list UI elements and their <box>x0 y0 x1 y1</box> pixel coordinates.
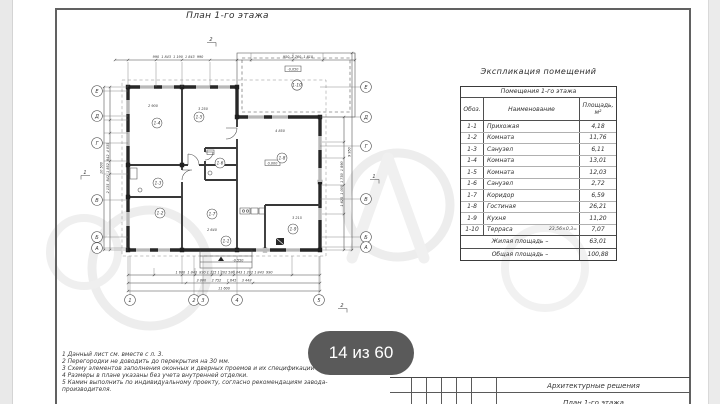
svg-text:3 800 2 752 1 645: 3 800 2 752 1 645 3 448 <box>197 279 253 283</box>
svg-text:2: 2 <box>192 298 195 304</box>
svg-text:1-2: 1-2 <box>157 211 164 216</box>
col-header-area: Площадь, м² <box>580 98 616 120</box>
table-row: 1-7Коридор6,59 <box>461 189 616 201</box>
pagination-badge: 14 из 60 <box>308 331 414 375</box>
svg-text:11 600: 11 600 <box>218 287 230 291</box>
porch-elevation: -0,550 <box>233 259 244 263</box>
bathroom-fixtures <box>130 150 214 192</box>
explication-table: Помещения 1-го этажа Обоз. Наименование … <box>460 86 617 261</box>
screenshot-root: План 1-го этажа -0,050 <box>0 0 720 404</box>
svg-text:3 250: 3 250 <box>198 107 208 111</box>
svg-text:1-7: 1-7 <box>209 212 216 217</box>
svg-text:1-10: 1-10 <box>292 83 302 88</box>
title-block: Архитектурные решения План 1-го этажа <box>390 377 690 404</box>
svg-text:2: 2 <box>209 37 212 43</box>
svg-text:2 135 842 1 852 842 4 035: 2 135 842 1 852 842 4 035 <box>106 143 110 194</box>
entrance-porch: -0,550 <box>200 250 252 268</box>
svg-text:Д: Д <box>363 115 368 121</box>
room-bubbles: 1-1 1-2 1-3 1-4 1-5 1-6 1-7 1-8 1-9 1-10 <box>152 80 302 246</box>
svg-text:4: 4 <box>235 298 238 304</box>
note-line: 5 Камин выполнить по индивидуальному про… <box>62 380 402 387</box>
terrace-elevation: -0,050 <box>288 67 299 71</box>
living-area-total: Жилая площадь – 63,01 <box>461 235 616 248</box>
svg-text:1: 1 <box>83 170 86 176</box>
terrace-coefficient-note: 23,56×0,3= <box>549 227 579 232</box>
svg-text:3: 3 <box>201 298 204 304</box>
title-block-signature-grid <box>390 378 497 404</box>
svg-text:Б: Б <box>364 235 368 241</box>
table-column-headers: Обоз. Наименование Площадь, м² <box>461 98 616 121</box>
explication-title: Экспликация помещений <box>460 66 617 78</box>
table-row: 1-8Гостиная26,21 <box>461 201 616 213</box>
svg-text:А: А <box>363 245 368 251</box>
svg-text:1-3: 1-3 <box>155 181 162 186</box>
table-row: 1-4Комната13,01 <box>461 155 616 167</box>
svg-text:1-8: 1-8 <box>279 156 286 161</box>
svg-text:5: 5 <box>317 298 320 304</box>
interior-dimensions: 2 900 3 250 4 850 2 640 3 215 <box>148 104 302 232</box>
svg-text:1-6: 1-6 <box>217 161 224 166</box>
svg-text:Б: Б <box>95 235 99 241</box>
fireplace <box>276 238 284 245</box>
svg-text:2 640: 2 640 <box>207 228 217 232</box>
svg-text:В: В <box>95 198 99 204</box>
table-row: 1-10 Терраса23,56×0,3= 7,07 <box>461 224 616 236</box>
svg-text:1 680 1 843 830 1 115 1 202: 1 680 1 843 830 1 115 1 202 580 843 1 20… <box>175 271 272 275</box>
table-row: 1-3Санузел6,11 <box>461 143 616 155</box>
svg-text:В: В <box>364 197 368 203</box>
title-block-sheet-caption: План 1-го этажа <box>497 393 690 404</box>
table-row: 1-2Комната11,76 <box>461 132 616 144</box>
explication: Экспликация помещений Помещения 1-го эта… <box>460 66 617 261</box>
col-header-name: Наименование <box>484 98 580 120</box>
svg-text:1: 1 <box>372 174 375 180</box>
svg-text:950 2 760 1 610: 950 2 760 1 610 <box>283 55 313 59</box>
plan-title: План 1-го этажа <box>160 10 295 22</box>
svg-text:2 900: 2 900 <box>148 104 158 108</box>
table-row: 1-5Комната12,03 <box>461 166 616 178</box>
svg-text:9 950: 9 950 <box>348 147 352 157</box>
svg-text:Д: Д <box>94 114 99 120</box>
svg-text:1-5: 1-5 <box>196 115 203 120</box>
svg-text:10 500: 10 500 <box>100 162 104 174</box>
floor-plan-drawing: -0,050 <box>60 12 460 332</box>
svg-text:4 850: 4 850 <box>275 129 285 133</box>
svg-text:0,000: 0,000 <box>268 161 278 165</box>
note-line: производителя. <box>62 387 402 394</box>
svg-text:А: А <box>94 246 99 252</box>
svg-text:1-1: 1-1 <box>223 239 230 244</box>
svg-text:1: 1 <box>128 298 131 304</box>
svg-text:1-9: 1-9 <box>290 227 297 232</box>
svg-text:1-4: 1-4 <box>154 121 161 126</box>
col-header-designation: Обоз. <box>461 98 484 120</box>
svg-text:2: 2 <box>340 303 343 309</box>
table-group-header: Помещения 1-го этажа <box>461 87 616 98</box>
svg-text:1 625 1 000 1 750 1 890: 1 625 1 000 1 750 1 890 <box>340 161 344 206</box>
svg-text:990 1 843 1 190 1 843 990: 990 1 843 1 190 1 843 990 <box>153 55 204 59</box>
svg-text:3 215: 3 215 <box>292 216 302 220</box>
table-row: 1-1Прихожая4,18 <box>461 121 616 132</box>
table-row: 1-6Санузел2,72 <box>461 178 616 190</box>
table-row: 1-9Кухня11,20 <box>461 212 616 224</box>
total-area: Общая площадь – 100,88 <box>461 248 616 261</box>
title-block-department: Архитектурные решения <box>497 378 690 393</box>
kitchen-fixtures <box>240 208 265 214</box>
